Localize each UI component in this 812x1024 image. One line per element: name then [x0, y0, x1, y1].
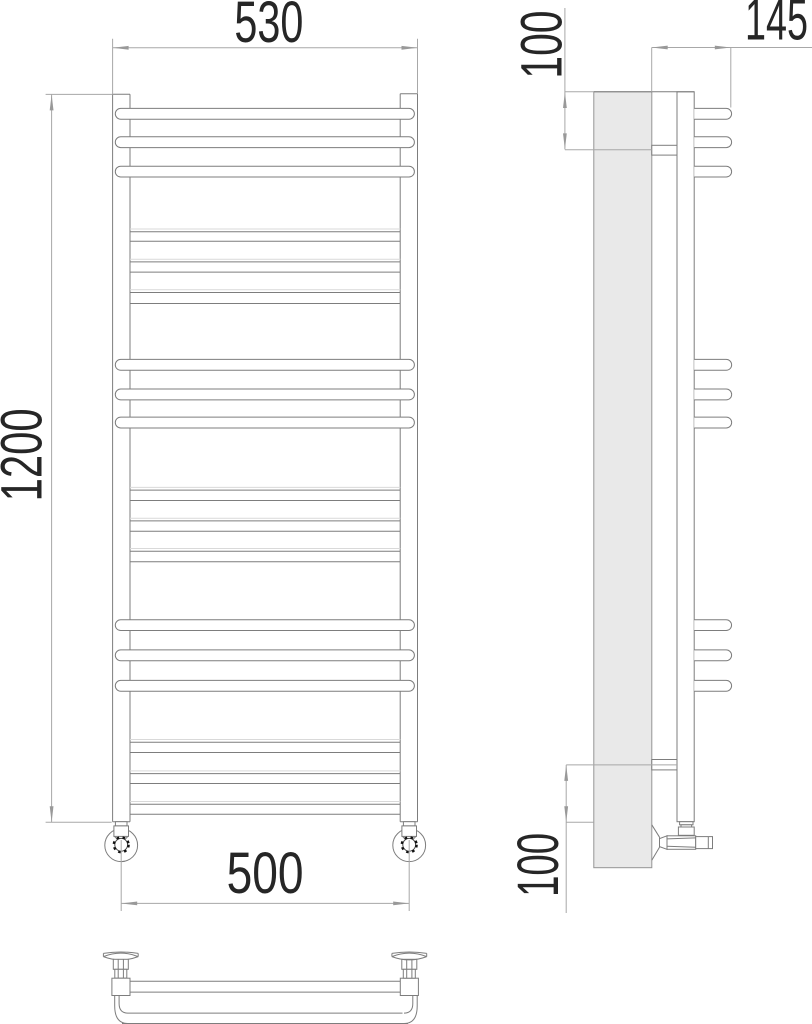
svg-text:145: 145 [745, 0, 808, 53]
svg-text:100: 100 [506, 833, 571, 897]
svg-text:1200: 1200 [0, 408, 55, 501]
svg-text:530: 530 [234, 0, 303, 55]
svg-text:100: 100 [510, 11, 575, 79]
svg-text:500: 500 [227, 841, 304, 906]
